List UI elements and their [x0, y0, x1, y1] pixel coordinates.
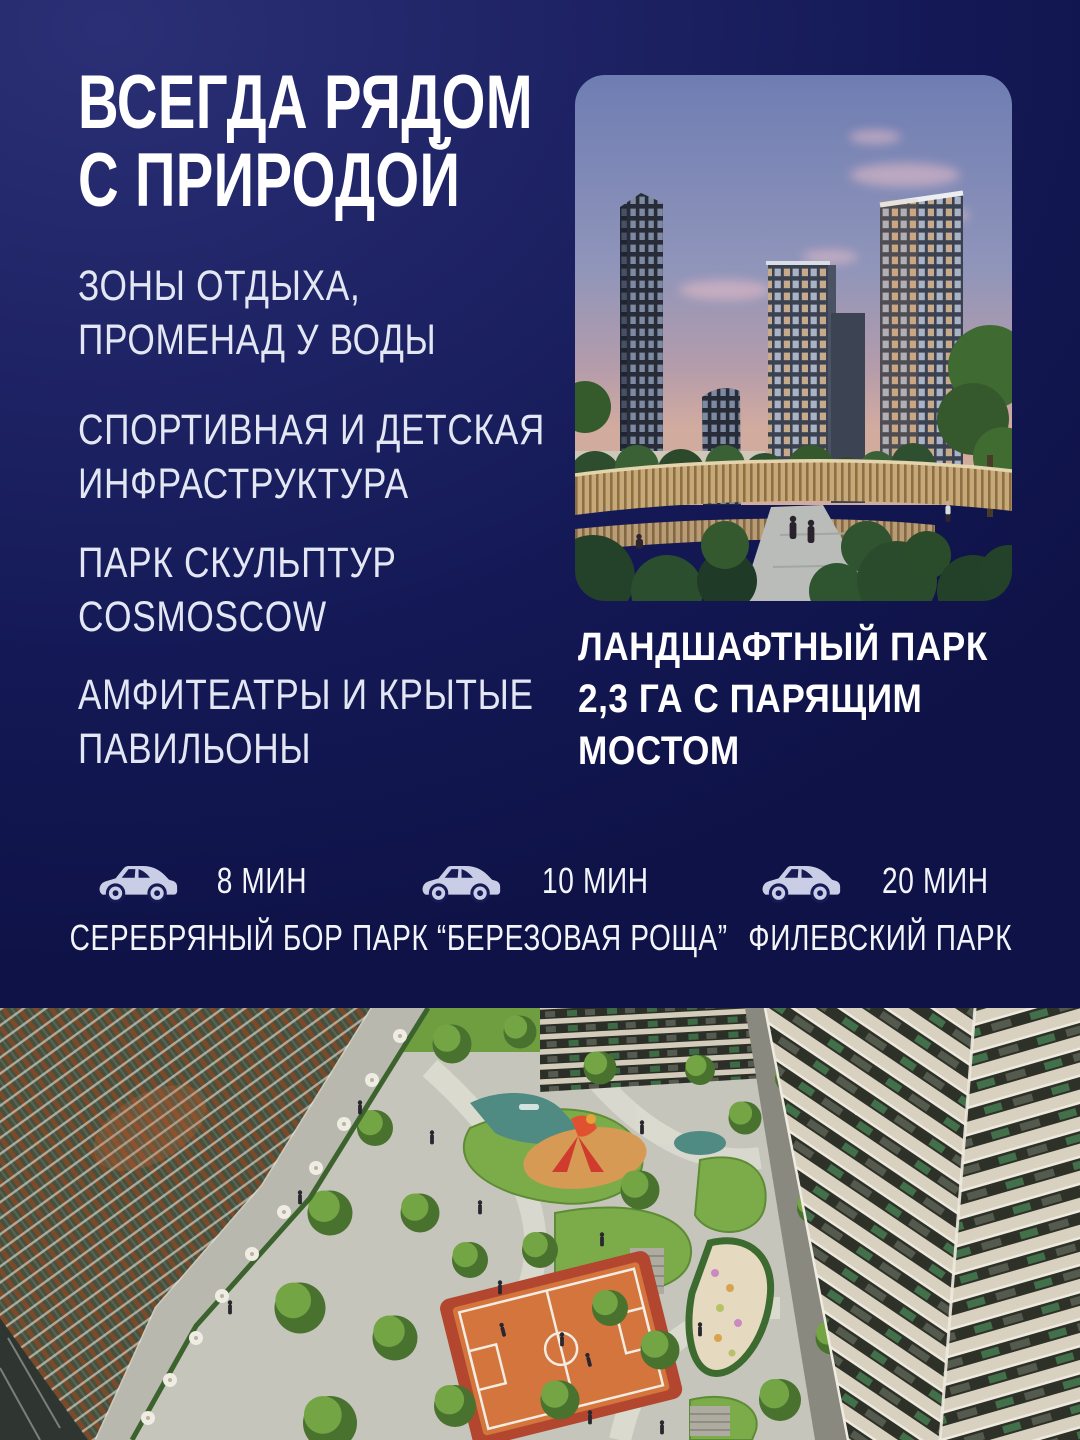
- travel-item-filevsky-park: 20 МИН ФИЛЕВСКИЙ ПАРК: [692, 854, 1068, 959]
- travel-place: ПАРК “БЕРЕЗОВАЯ РОЩА”: [352, 917, 728, 959]
- photo-caption: ЛАНДШАФТНЫЙ ПАРК 2,3 ГА С ПАРЯЩИМ МОСТОМ: [578, 621, 988, 777]
- car-icon: [757, 858, 841, 904]
- travel-place: ФИЛЕВСКИЙ ПАРК: [748, 917, 1012, 959]
- marketing-slide: ВСЕГДА РЯДОМ С ПРИРОДОЙ ЗОНЫ ОТДЫХА, ПРО…: [0, 0, 1080, 1440]
- travel-times-row: 8 МИН СЕРЕБРЯНЫЙ БОР 10 МИН ПАРК “БЕРЕЗО…: [0, 854, 1080, 964]
- feature-item-sculpture-park: ПАРК СКУЛЬПТУР COSMOSCOW: [78, 537, 397, 645]
- travel-time: 8 МИН: [217, 860, 307, 902]
- courtyard-aerial-photo: [0, 1008, 1080, 1440]
- car-icon: [417, 858, 501, 904]
- travel-item-berezovaya-roshcha: 10 МИН ПАРК “БЕРЕЗОВАЯ РОЩА”: [352, 854, 728, 959]
- feature-item-recreation: ЗОНЫ ОТДЫХА, ПРОМЕНАД У ВОДЫ: [78, 260, 436, 368]
- park-render-photo: [575, 75, 1012, 601]
- travel-time: 20 МИН: [882, 860, 989, 902]
- page-title: ВСЕГДА РЯДОМ С ПРИРОДОЙ: [78, 64, 533, 221]
- travel-time: 10 МИН: [542, 860, 649, 902]
- feature-item-amphitheatre: АМФИТЕАТРЫ И КРЫТЫЕ ПАВИЛЬОНЫ: [78, 669, 534, 777]
- feature-item-sport: СПОРТИВНАЯ И ДЕТСКАЯ ИНФРАСТРУКТУРА: [78, 404, 545, 512]
- car-icon: [94, 858, 178, 904]
